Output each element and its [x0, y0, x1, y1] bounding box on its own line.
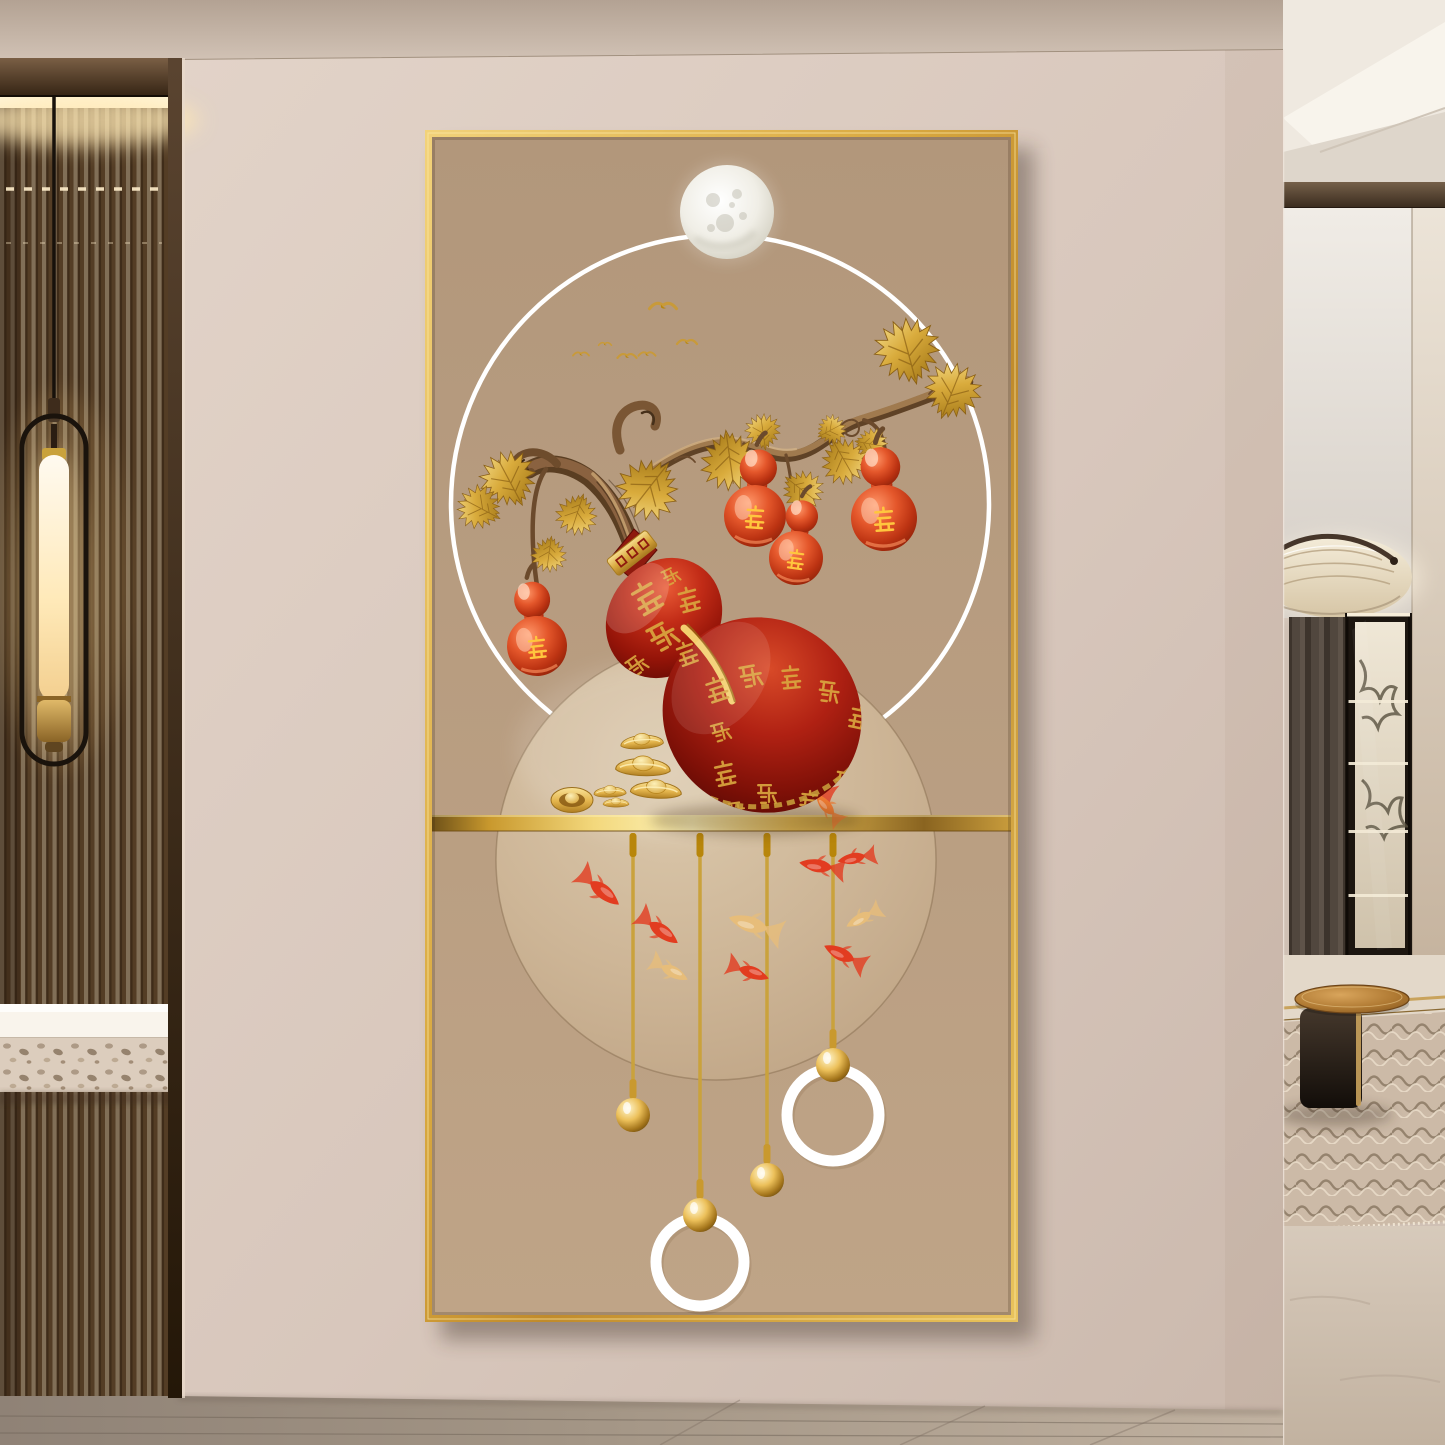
- wall-shade-right: [1225, 50, 1283, 1411]
- gold-ball: [816, 1048, 850, 1082]
- string-lower-fitting: [630, 1079, 637, 1099]
- gold-ball: [616, 1098, 650, 1132]
- moon-crater: [706, 193, 720, 207]
- partition-edge-frame: [168, 58, 182, 1398]
- partition-soffit: [0, 58, 178, 96]
- pendant-bulb: [39, 455, 69, 700]
- rr-floor: [1283, 1226, 1445, 1445]
- shelf-terrazzo: [0, 1038, 176, 1092]
- string-top-fitting: [830, 833, 837, 857]
- table-base: [1300, 1008, 1362, 1108]
- ball-highlight: [690, 1202, 698, 1214]
- left-partition: [0, 58, 199, 1398]
- scene: Modern beige hallway with a gold-framed …: [0, 0, 1445, 1445]
- string-lower-fitting: [764, 1144, 771, 1164]
- display-cabinet: [1345, 613, 1412, 955]
- string-top-fitting: [630, 833, 637, 857]
- pendant-brass-cap: [37, 700, 71, 742]
- string-lower-fitting: [830, 1029, 837, 1049]
- string-top-fitting: [697, 833, 704, 857]
- moon-crater: [732, 189, 742, 199]
- moon-crater: [716, 214, 734, 232]
- ball-highlight: [757, 1167, 765, 1179]
- ball-highlight: [823, 1052, 831, 1064]
- string-lower-fitting: [697, 1179, 704, 1199]
- moon-crater: [707, 224, 715, 232]
- table-top: [1295, 985, 1409, 1013]
- right-room: [1258, 0, 1445, 1445]
- gold-dish-egg: [565, 793, 579, 804]
- scene-root: Modern beige hallway with a gold-framed …: [0, 0, 1445, 1445]
- marble-shelf: [0, 1004, 176, 1104]
- gold-ball: [750, 1163, 784, 1197]
- string-top-fitting: [764, 833, 771, 857]
- moon-crater: [739, 212, 747, 220]
- ball-highlight: [623, 1102, 631, 1114]
- moon: [675, 160, 779, 264]
- rr-beam: [1283, 182, 1445, 208]
- painting: [425, 130, 1018, 1322]
- cabinet-led: [1347, 613, 1410, 617]
- gold-ball: [683, 1198, 717, 1232]
- moon-crater: [729, 202, 735, 208]
